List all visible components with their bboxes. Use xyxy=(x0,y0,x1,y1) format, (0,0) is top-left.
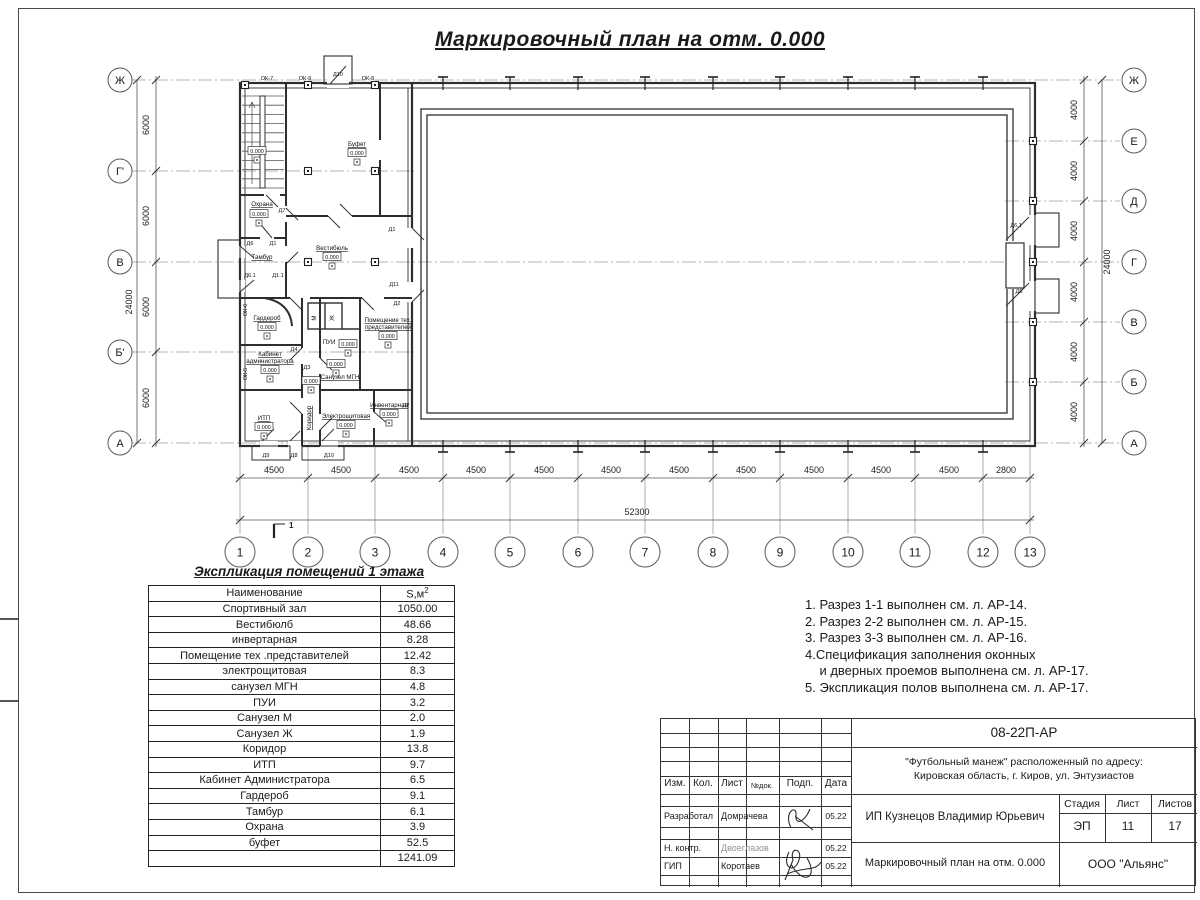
door-label: Д4 xyxy=(291,347,298,353)
room-label: Помещение тех. xyxy=(365,317,412,324)
table-row: Спортивный зал1050.00 xyxy=(149,601,455,617)
axis-bubble-label: 5 xyxy=(507,545,514,559)
level-value: 0.000 xyxy=(250,149,264,155)
dimension-value: 4500 xyxy=(264,465,284,475)
drawing-sheet: Маркировочный план на отм. 0.000 xyxy=(0,0,1200,900)
dimension-value: 4500 xyxy=(466,465,486,475)
door-label: Д7 xyxy=(279,208,286,214)
room-label: Буфет xyxy=(348,141,366,148)
table-row: 1241.09 xyxy=(149,851,455,867)
project-address-line1: "Футбольный манеж" расположенный по адре… xyxy=(905,756,1143,768)
client-name: ИП Кузнецов Владимир Юрьевич xyxy=(865,811,1044,823)
axis-bubble-label: Б xyxy=(1130,377,1137,389)
table-row: Коридор13.8 xyxy=(149,742,455,758)
door-label: Д6 xyxy=(1016,289,1023,295)
dimension-value: 4000 xyxy=(1069,342,1079,362)
axis-bubble-label: В xyxy=(1130,317,1137,329)
room-name-cell: ИТП xyxy=(149,757,381,773)
level-value: 0.000 xyxy=(381,334,395,340)
room-label: Вестибюль xyxy=(316,245,348,252)
room-label: ПУИ xyxy=(323,339,336,346)
room-name-cell xyxy=(149,851,381,867)
room-area-cell: 6.5 xyxy=(381,773,455,789)
project-address-line2: Кировская область, г. Киров, ул. Энтузиа… xyxy=(914,770,1134,782)
dimension-value: 4500 xyxy=(331,465,351,475)
sheet-label: Лист xyxy=(1117,798,1140,810)
door-label: Д9 xyxy=(263,453,270,459)
level-value: 0.000 xyxy=(350,151,364,157)
dimension-value: 4500 xyxy=(804,465,824,475)
note-line: и дверных проемов выполнена см. л. АР-17… xyxy=(805,663,1089,680)
room-label: Ж xyxy=(329,315,336,321)
dimension-value: 4500 xyxy=(736,465,756,475)
axis-bubble-label: 11 xyxy=(909,545,922,559)
table-row: Помещение тех .представителей12.42 xyxy=(149,648,455,664)
table-row: Санузел М2.0 xyxy=(149,710,455,726)
room-area-cell: 48.66 xyxy=(381,617,455,633)
field-border-outer xyxy=(421,109,1013,419)
col-podp: Подп. xyxy=(787,778,814,789)
table-row: ПУИ3.2 xyxy=(149,695,455,711)
sheet-title: Маркировочный план на отм. 0.000 xyxy=(865,857,1045,869)
room-name-cell: Санузел Ж xyxy=(149,726,381,742)
door-label: Д1 xyxy=(389,227,396,233)
door-leaves xyxy=(240,66,1029,441)
porch-bottom xyxy=(252,446,290,460)
exit-tambour-right xyxy=(1035,279,1059,313)
note-line: 4.Спецификация заполнения оконных xyxy=(805,647,1089,664)
room-area-cell: 1.9 xyxy=(381,726,455,742)
table-row: электрощитовая8.3 xyxy=(149,664,455,680)
axis-bubble-label: Е xyxy=(1130,136,1137,148)
table-row: Вестибюлб48.66 xyxy=(149,617,455,633)
dimension-value: 4000 xyxy=(1069,402,1079,422)
room-label: Коридор xyxy=(306,405,313,430)
fold-mark xyxy=(0,700,18,702)
fold-mark xyxy=(0,618,18,620)
dimension-value: 4500 xyxy=(939,465,959,475)
dimension-value: 6000 xyxy=(141,297,151,317)
room-label: Охрана xyxy=(251,201,273,208)
note-line: 1. Разрез 1-1 выполнен см. л. АР-14. xyxy=(805,597,1089,614)
room-area-cell: 12.42 xyxy=(381,648,455,664)
room-area-cell: 8.3 xyxy=(381,664,455,680)
col-data: Дата xyxy=(825,778,847,789)
room-schedule-title: Экспликация помещений 1 этажа xyxy=(194,564,458,579)
title-block: 08-22П-АР "Футбольный манеж" расположенн… xyxy=(660,718,1196,886)
axis-bubble-label: 8 xyxy=(710,545,717,559)
note-line: 2. Разрез 2-2 выполнен см. л. АР-15. xyxy=(805,614,1089,631)
room-name-cell: Охрана xyxy=(149,819,381,835)
table-row: Тамбур6.1 xyxy=(149,804,455,820)
room-name-cell: Кабинет Администратора xyxy=(149,773,381,789)
dimension-value: 4500 xyxy=(669,465,689,475)
floor-plan: 1 45004500450045004500450045004500450045… xyxy=(0,0,1200,580)
room-name-cell: Помещение тех .представителей xyxy=(149,648,381,664)
notes-list: 1. Разрез 1-1 выполнен см. л. АР-14.2. Р… xyxy=(805,597,1089,696)
signer-name: Коротаев xyxy=(721,861,760,871)
room-area-cell: 9.1 xyxy=(381,788,455,804)
level-value: 0.000 xyxy=(339,423,353,429)
room-label: ИТП xyxy=(258,415,271,422)
room-schedule-body: Спортивный зал1050.00Вестибюлб48.66инвер… xyxy=(149,601,455,866)
room-name-cell: ПУИ xyxy=(149,695,381,711)
signer-name: Домрачева xyxy=(721,811,768,821)
level-value: 0.000 xyxy=(263,368,277,374)
room-name-cell: инвертарная xyxy=(149,632,381,648)
room-area-cell: 1050.00 xyxy=(381,601,455,617)
room-label: Электрощитовая xyxy=(322,413,371,420)
level-value: 0.000 xyxy=(260,325,274,331)
dimension-value: 4500 xyxy=(534,465,554,475)
axis-bubble-label: 9 xyxy=(777,545,784,559)
axis-bubble-label: 6 xyxy=(575,545,582,559)
sheets-label: Листов xyxy=(1158,798,1192,810)
level-value: 0.000 xyxy=(329,362,343,368)
axis-bubble-label: 10 xyxy=(841,545,855,559)
room-area-cell: 6.1 xyxy=(381,804,455,820)
room-area-cell: 13.8 xyxy=(381,742,455,758)
section-mark-label: 1 xyxy=(289,521,294,530)
table-row: Санузел Ж1.9 xyxy=(149,726,455,742)
axis-bubble-label: Д xyxy=(1130,196,1138,208)
building-walls xyxy=(240,83,1035,446)
door-label: Д2 xyxy=(394,301,401,307)
signature xyxy=(777,802,823,887)
dimension-value: 6000 xyxy=(141,206,151,226)
table-row: Гардероб9.1 xyxy=(149,788,455,804)
room-name-cell: Коридор xyxy=(149,742,381,758)
axis-bubble-label: 3 xyxy=(372,545,379,559)
col-header-name: Наименование xyxy=(149,586,381,602)
room-label: Тамбур xyxy=(252,254,274,261)
level-value: 0.000 xyxy=(325,255,339,261)
room-name-cell: буфет xyxy=(149,835,381,851)
room-schedule: Экспликация помещений 1 этажа Наименован… xyxy=(148,564,458,867)
signer-date: 05.22 xyxy=(825,811,846,821)
room-area-cell: 1241.09 xyxy=(381,851,455,867)
axis-bubble-label: В xyxy=(116,257,123,269)
dimension-value: 4500 xyxy=(871,465,891,475)
room-area-cell: 3.2 xyxy=(381,695,455,711)
table-row: Кабинет Администратора6.5 xyxy=(149,773,455,789)
col-header-area: S,м2 xyxy=(381,586,455,602)
door-label: Д2 xyxy=(403,403,410,409)
signer-date: 05.22 xyxy=(825,861,846,871)
dimension-value: 4000 xyxy=(1069,100,1079,120)
axis-bubble-label: 12 xyxy=(976,545,990,559)
room-area-cell: 4.8 xyxy=(381,679,455,695)
field-border-inner xyxy=(427,115,1007,413)
axis-bubble-label: Ж xyxy=(115,75,125,87)
dimension-value: 4500 xyxy=(399,465,419,475)
axis-bubble-label: Б' xyxy=(115,347,124,359)
wall-openings xyxy=(236,79,1037,448)
room-area-cell: 8.28 xyxy=(381,632,455,648)
axis-bubble-label: Г xyxy=(1131,257,1137,269)
note-line: 3. Разрез 3-3 выполнен см. л. АР-16. xyxy=(805,630,1089,647)
signer-role: Н. контр. xyxy=(664,843,701,853)
dimension-value: 4000 xyxy=(1069,221,1079,241)
door-label: Д1 xyxy=(270,241,277,247)
room-name-cell: Вестибюлб xyxy=(149,617,381,633)
signer-role: Разработал xyxy=(664,811,713,821)
room-area-cell: 3.9 xyxy=(381,819,455,835)
level-value: 0.000 xyxy=(382,412,396,418)
table-row: санузел МГН4.8 xyxy=(149,679,455,695)
level-value: 0.000 xyxy=(257,425,271,431)
room-label: администратора xyxy=(246,358,294,365)
window-label: ОК-5 xyxy=(243,368,249,381)
axis-bubble-label: А xyxy=(1130,438,1138,450)
window-label: ОК-9 xyxy=(299,76,312,82)
door-label: Д10 xyxy=(324,453,334,459)
axis-bubble-label: 1 xyxy=(237,545,244,559)
room-name-cell: электрощитовая xyxy=(149,664,381,680)
room-name-cell: Гардероб xyxy=(149,788,381,804)
room-label: Гардероб xyxy=(253,315,281,322)
col-list: Лист xyxy=(721,778,743,789)
room-label: М xyxy=(311,315,318,320)
door-label: Д11 xyxy=(389,282,399,288)
axis-bubble-label: 4 xyxy=(440,545,447,559)
dimension-total: 24000 xyxy=(1102,249,1112,274)
dimension-value: 4000 xyxy=(1069,282,1079,302)
company-name: ООО "Альянс" xyxy=(1088,857,1168,871)
room-area-cell: 9.7 xyxy=(381,757,455,773)
doc-number: 08-22П-АР xyxy=(991,725,1058,740)
table-row: инвертарная8.28 xyxy=(149,632,455,648)
door-label: Д3 xyxy=(304,365,311,371)
door-label: Д6.1 xyxy=(1010,223,1022,229)
axis-bubble-label: Ж xyxy=(1129,75,1139,87)
axis-bubble-label: 13 xyxy=(1023,545,1037,559)
door-label: Д6 xyxy=(247,241,254,247)
signer-name: Двоеглазов xyxy=(721,843,769,853)
dimension-total: 52300 xyxy=(624,507,649,517)
stage-value: ЭП xyxy=(1073,819,1090,833)
window-label: ОК-8 xyxy=(362,76,375,82)
table-row: Охрана3.9 xyxy=(149,819,455,835)
window-label: ОК-6 xyxy=(243,304,249,317)
room-label: Санузел МГН xyxy=(321,374,360,381)
axis-bubble-label: А xyxy=(116,438,124,450)
dimension-value: 2800 xyxy=(996,465,1016,475)
signer-date: 05.22 xyxy=(825,843,846,853)
room-name-cell: Тамбур xyxy=(149,804,381,820)
axis-bubble-label: 7 xyxy=(642,545,649,559)
dimension-value: 6000 xyxy=(141,115,151,135)
room-name-cell: Санузел М xyxy=(149,710,381,726)
door-label: Д1.1 xyxy=(272,273,284,279)
dimension-value: 4000 xyxy=(1069,161,1079,181)
axis-bubble-label: 2 xyxy=(305,545,312,559)
sheet-number: 11 xyxy=(1122,819,1134,833)
signer-role: ГИП xyxy=(664,861,682,871)
col-ndok: №док. xyxy=(751,781,773,790)
level-value: 0.000 xyxy=(341,342,355,348)
level-value: 0.000 xyxy=(304,379,318,385)
col-kol: Кол. xyxy=(693,778,713,789)
col-izm: Изм. xyxy=(664,778,685,789)
door-label: Д6.1 xyxy=(244,273,256,279)
exit-tambour-right xyxy=(1035,213,1059,247)
dimension-value: 6000 xyxy=(141,388,151,408)
dimension-value: 4500 xyxy=(601,465,621,475)
table-row: буфет52.5 xyxy=(149,835,455,851)
stage-label: Стадия xyxy=(1064,798,1100,810)
room-label: Кабинет xyxy=(258,351,282,358)
dimension-total: 24000 xyxy=(124,289,134,314)
table-row: ИТП9.7 xyxy=(149,757,455,773)
axis-bubble-label: Г' xyxy=(116,166,124,178)
interior-walls xyxy=(240,83,412,446)
room-area-cell: 52.5 xyxy=(381,835,455,851)
level-value: 0.000 xyxy=(252,212,266,218)
room-area-cell: 2.0 xyxy=(381,710,455,726)
room-schedule-table: Наименование S,м2 Спортивный зал1050.00В… xyxy=(148,585,455,867)
door-label: Д10 xyxy=(333,72,343,78)
sheets-total: 17 xyxy=(1168,819,1181,833)
door-label: Д8 xyxy=(291,453,298,459)
note-line: 5. Экспликация полов выполнена см. л. АР… xyxy=(805,680,1089,697)
window-label: ОК-7 xyxy=(261,76,274,82)
room-name-cell: Спортивный зал xyxy=(149,601,381,617)
annexes xyxy=(218,56,1059,460)
room-name-cell: санузел МГН xyxy=(149,679,381,695)
room-label: представителей xyxy=(365,324,412,331)
